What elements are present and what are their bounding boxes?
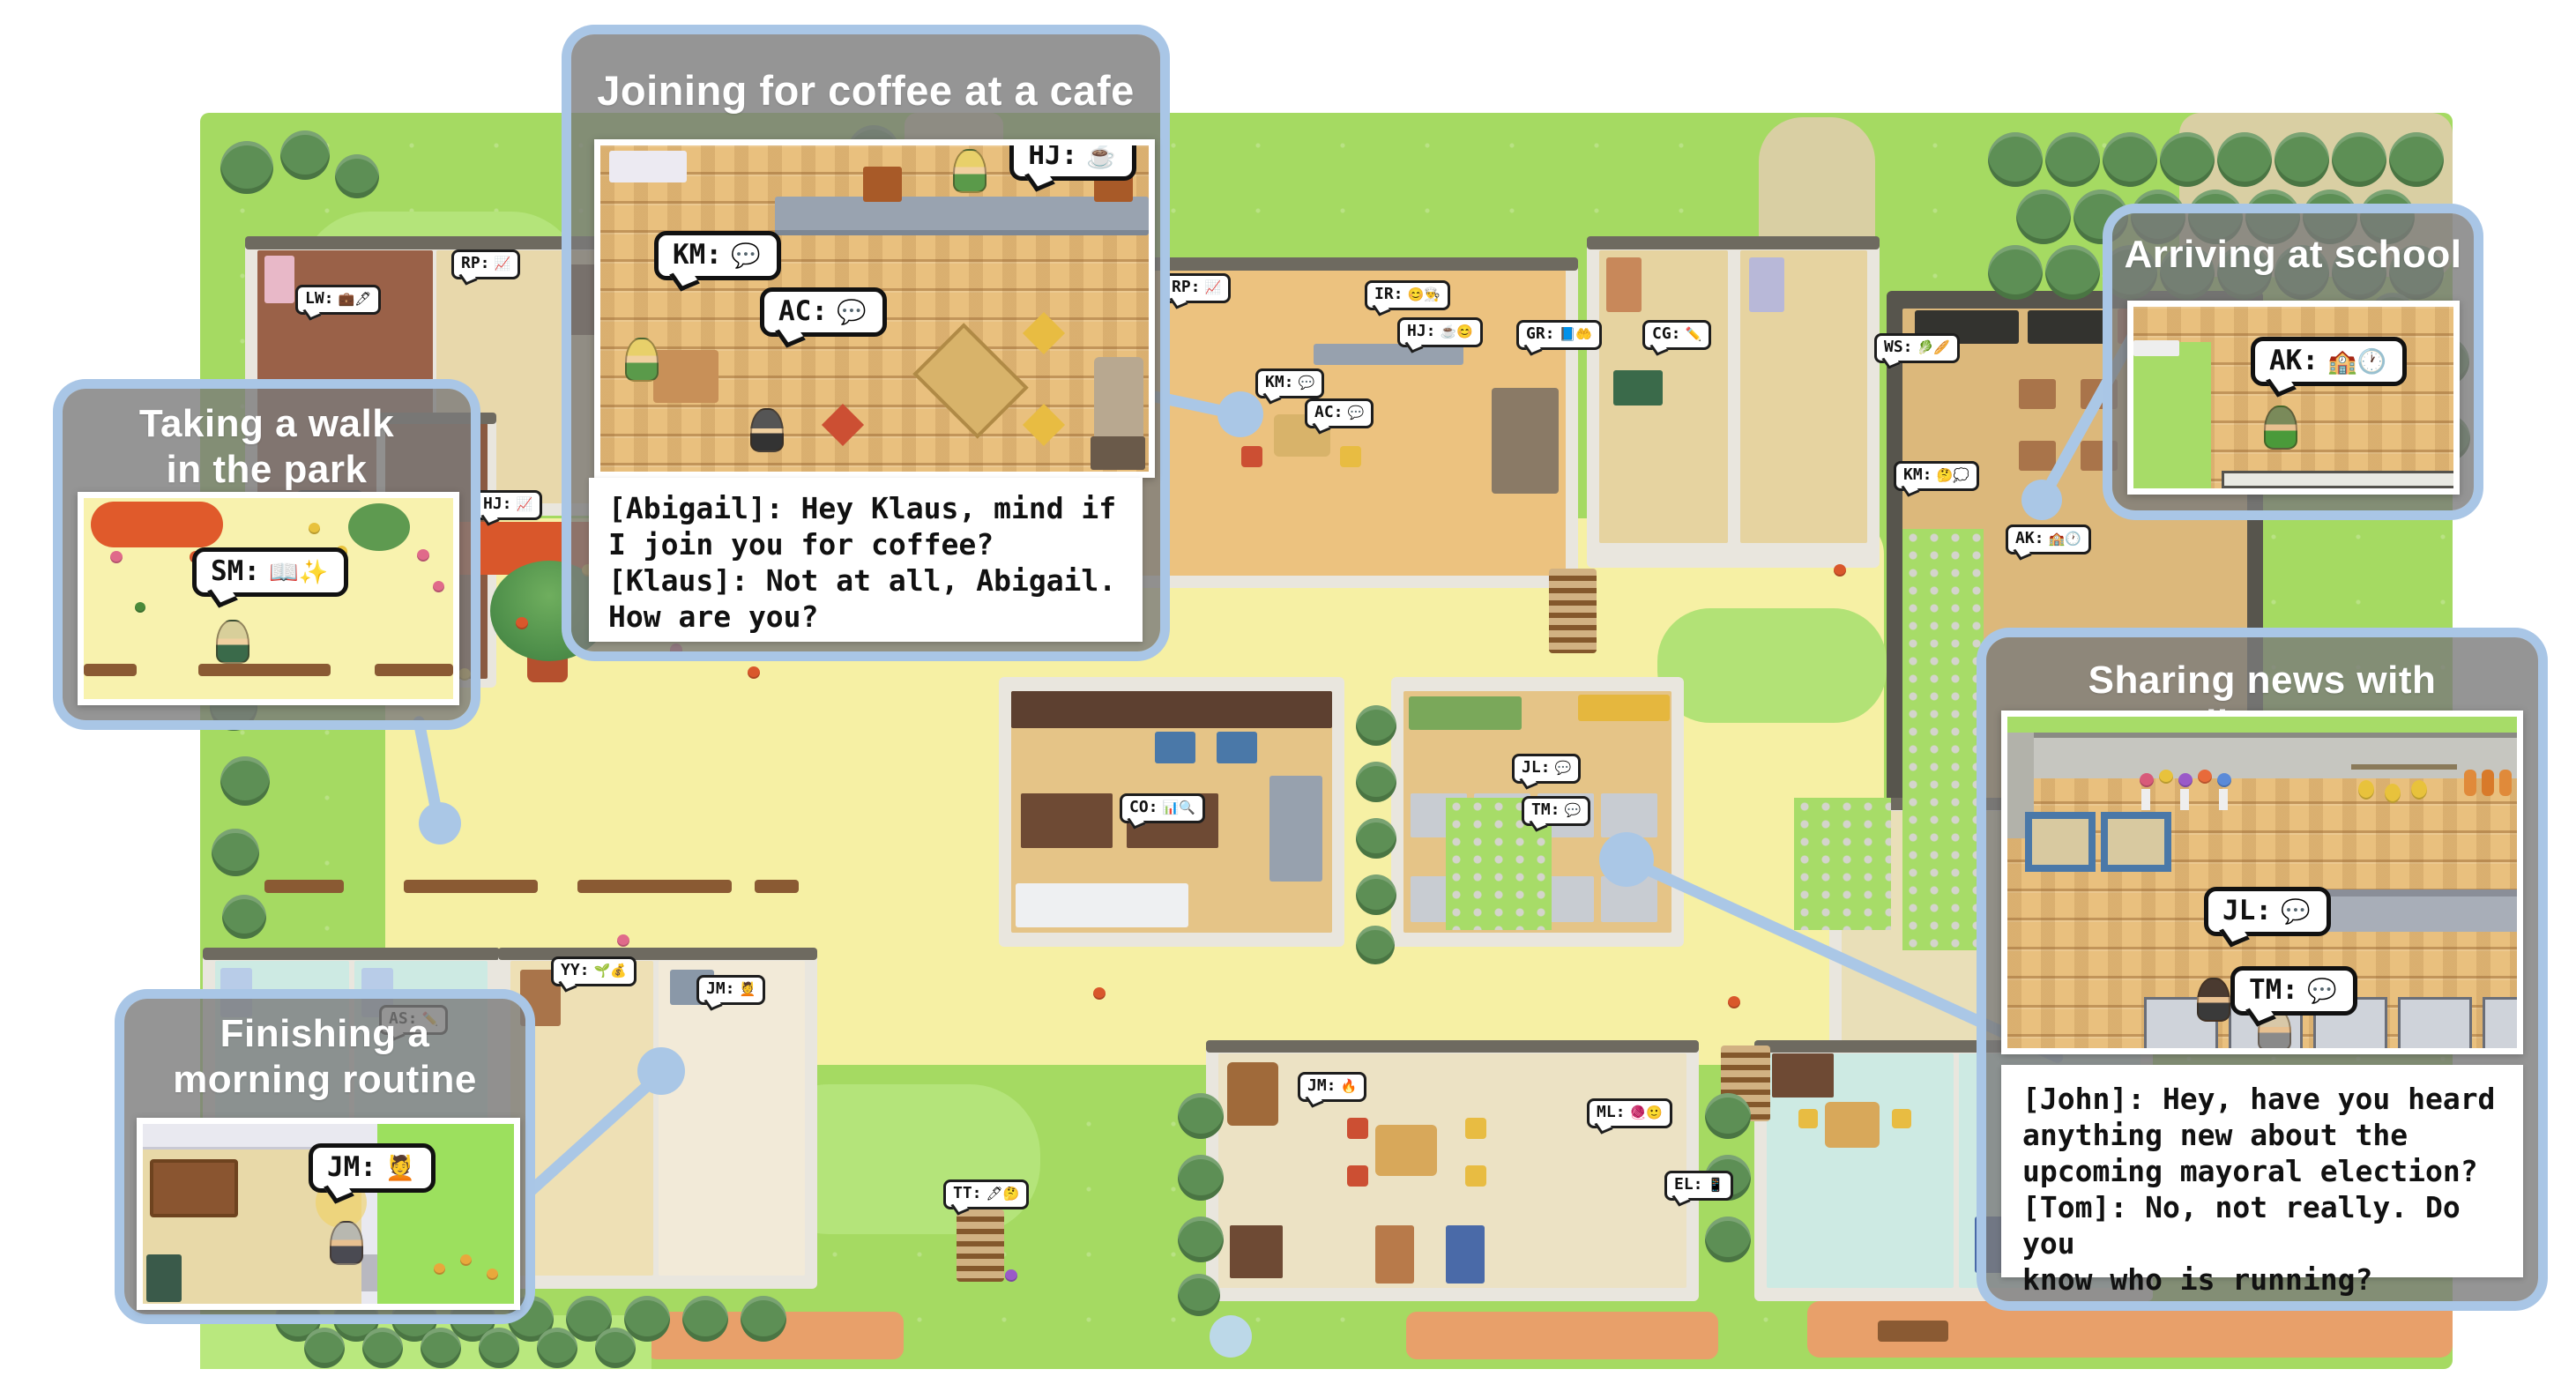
connector-dot-school	[2021, 480, 2062, 520]
map-bubble-el: EL:📱	[1664, 1171, 1733, 1201]
map-bubble-gr: GR:📘🤲	[1516, 320, 1602, 350]
map-bubble-jm: JM:🔥	[1298, 1072, 1366, 1102]
speech-bubble-sm: SM:📖✨	[192, 547, 348, 597]
map-bubble-ak: AK:🏫🕐	[2006, 525, 2091, 554]
map-bubble-km: KM:💬	[1255, 368, 1324, 398]
speech-bubble-km: KM:💬	[654, 231, 781, 280]
dialogue-cafe: [Abigail]: Hey Klaus, mind if I join you…	[589, 478, 1143, 642]
park-screenshot: SM:📖✨	[78, 492, 459, 705]
dialogue-news: [John]: Hey, have you heard anything new…	[2001, 1065, 2523, 1277]
character-sm	[216, 620, 249, 664]
figure-smallville-overview: LW:💼🖊RP:📈FL:👜HJ:📈RP:📈IR:😊👨‍🍳HJ:☕😊KM:💬AC:…	[0, 0, 2576, 1384]
speech-bubble-jm: JM:💆	[309, 1143, 436, 1193]
morning-screenshot: JM:💆	[137, 1118, 520, 1310]
connector-dot-news	[1599, 832, 1654, 887]
map-bubble-yy: YY:🌱💰	[551, 956, 637, 986]
character-barista	[953, 149, 986, 193]
map-bubble-rp: RP:📈	[451, 249, 520, 279]
character-klaus	[625, 338, 659, 382]
speech-bubble-ak: AK:🏫🕐	[2251, 337, 2407, 386]
connector-dot-park	[419, 802, 461, 845]
callout-title-school: Arriving at school	[2112, 233, 2474, 277]
character-jm	[330, 1221, 363, 1265]
connector-dot-morning	[637, 1047, 685, 1095]
connector-dot-cafe	[1217, 391, 1263, 437]
callout-title-cafe: Joining for coffee at a cafe	[571, 66, 1160, 115]
map-bubble-rp: RP:📈	[1162, 273, 1231, 303]
map-bubble-ml: ML:🧶🙂	[1587, 1098, 1672, 1128]
map-bubble-tt: TT:🖊🤔	[943, 1179, 1029, 1209]
map-bubble-hj: HJ:☕😊	[1397, 317, 1483, 347]
character-tom	[2197, 978, 2230, 1022]
map-bubble-ac: AC:💬	[1305, 398, 1374, 428]
map-bubble-co: CO:📊🔍	[1120, 793, 1205, 823]
map-bubble-jm: JM:💆	[696, 975, 765, 1005]
callout-card-park: Taking a walk in the park SM:📖✨	[63, 389, 471, 720]
map-bubble-lw: LW:💼🖊	[295, 285, 381, 315]
cafe-screenshot: KM:💬 AC:💬 HJ:☕	[594, 139, 1155, 478]
callout-card-cafe: Joining for coffee at a cafe KM:💬 AC:💬	[571, 34, 1160, 651]
speech-bubble-jl: JL:💬	[2204, 887, 2331, 936]
speech-bubble-tm: TM:💬	[2230, 966, 2357, 1016]
callout-card-morning: Finishing a morning routine JM:💆	[124, 999, 525, 1314]
school-screenshot: AK:🏫🕐	[2127, 301, 2460, 495]
character-ak	[2264, 406, 2297, 450]
callout-card-school: Arriving at school AK:🏫🕐	[2112, 213, 2474, 510]
map-bubble-km: KM:🤔💭	[1894, 461, 1979, 491]
map-bubble-hj: HJ:📈	[473, 490, 542, 520]
character-abigail	[750, 408, 784, 452]
map-bubble-tm: TM:💬	[1522, 796, 1590, 826]
speech-bubble-ac: AC:💬	[760, 287, 887, 337]
callout-title-morning: Finishing a morning routine	[124, 1011, 525, 1103]
map-bubble-cg: CG:✏️	[1642, 320, 1711, 350]
news-screenshot: JL:💬 TM:💬	[2001, 711, 2523, 1054]
speech-bubble-hj-cut: HJ:☕	[1009, 139, 1136, 181]
callout-title-park: Taking a walk in the park	[63, 401, 471, 493]
map-bubble-jl: JL:💬	[1512, 754, 1581, 784]
map-bubble-ir: IR:😊👨‍🍳	[1365, 280, 1450, 310]
callout-card-news: Sharing news with colleagues	[1986, 637, 2538, 1301]
map-bubble-ws: WS:🥬🥖	[1874, 333, 1960, 363]
